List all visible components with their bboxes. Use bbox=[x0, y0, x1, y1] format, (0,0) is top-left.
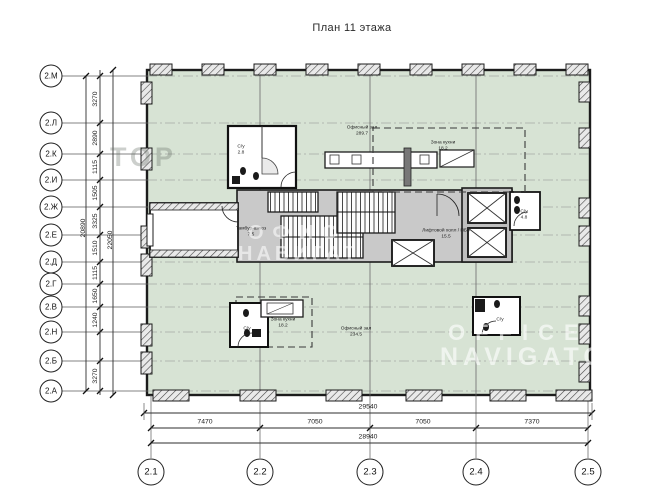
pilaster bbox=[326, 390, 362, 401]
pilaster bbox=[406, 390, 442, 401]
pilaster bbox=[358, 64, 380, 75]
pilaster bbox=[141, 352, 152, 374]
toilet-icon bbox=[253, 172, 259, 180]
watermark: ТОР bbox=[110, 142, 177, 173]
pilaster bbox=[579, 128, 590, 148]
corridor bbox=[150, 203, 238, 257]
stairwell bbox=[268, 192, 318, 212]
pilaster bbox=[579, 226, 590, 246]
watermark: НАВИГАТ bbox=[238, 243, 359, 266]
toilet-icon bbox=[514, 196, 520, 204]
pilaster bbox=[566, 64, 588, 75]
pilaster bbox=[141, 82, 152, 104]
wall-hatch bbox=[150, 250, 238, 257]
pilaster bbox=[514, 64, 536, 75]
pilaster bbox=[240, 390, 276, 401]
pilaster bbox=[153, 390, 189, 401]
column bbox=[404, 148, 411, 186]
shower-icon bbox=[475, 299, 485, 312]
pilaster bbox=[410, 64, 432, 75]
pilaster bbox=[579, 82, 590, 102]
pilaster bbox=[462, 64, 484, 75]
watermark: NAVIGATO bbox=[440, 343, 608, 372]
pilaster bbox=[556, 390, 592, 401]
wall-hatch bbox=[150, 203, 238, 210]
wall-recess bbox=[147, 214, 153, 246]
toilet-icon bbox=[243, 309, 249, 317]
drawing-sheet: План 11 этажа bbox=[0, 0, 652, 502]
toilet-icon bbox=[240, 167, 246, 175]
pilaster bbox=[490, 390, 526, 401]
sink-icon bbox=[252, 329, 261, 337]
sink-icon bbox=[232, 176, 240, 184]
pilaster bbox=[579, 296, 590, 316]
pilaster bbox=[254, 64, 276, 75]
toilet-icon bbox=[494, 300, 500, 308]
pilaster bbox=[141, 324, 152, 346]
pilaster bbox=[306, 64, 328, 75]
pilaster bbox=[202, 64, 224, 75]
toilet-icon bbox=[514, 206, 520, 214]
watermark: ОФИС bbox=[248, 222, 345, 245]
pilaster bbox=[579, 198, 590, 218]
pilaster bbox=[150, 64, 172, 75]
